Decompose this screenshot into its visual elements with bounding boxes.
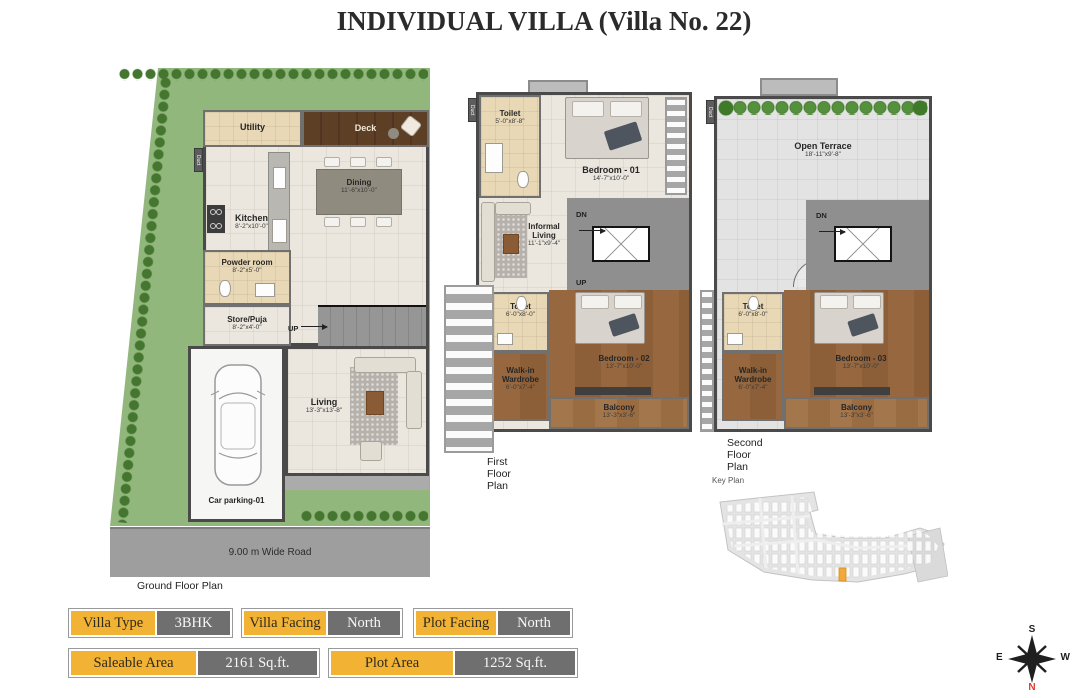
compass: S E W N: [1000, 624, 1064, 694]
key-plan-map: [708, 488, 948, 594]
ff-informal-dim: 11'-1"x9'-4": [521, 240, 567, 247]
sf-balcony: Balcony 13'-3"x3'-6": [784, 397, 929, 429]
dining-chair-icon: [376, 157, 392, 167]
ff-balcony-label: Balcony: [551, 403, 687, 412]
badge-value: 1252 Sq.ft.: [455, 651, 575, 675]
stairs-ground: [318, 305, 426, 346]
badge-villa-facing: Villa Facing North: [241, 608, 403, 638]
room-powder: Powder room 8'-2"x5'-0": [203, 250, 291, 305]
badge-label: Villa Type: [71, 611, 155, 635]
utility-label: Utility: [205, 122, 300, 132]
duct-tag: Duct: [706, 100, 715, 124]
ff-bedroom-01-dim: 14'-7"x10'-0": [551, 175, 671, 182]
tv-unit: [575, 387, 651, 395]
sink-icon: [255, 283, 275, 297]
sf-wardrobe-dim: 6'-0"x7'-4": [724, 384, 782, 391]
road: 9.00 m Wide Road: [110, 527, 430, 577]
ff-bedroom-02-dim: 13'-7"x10'-0": [569, 363, 679, 370]
compass-south: S: [1000, 624, 1064, 635]
compass-west: W: [1061, 652, 1070, 663]
dn-arrow-icon: [819, 231, 845, 232]
terrace-label: Open Terrace: [717, 141, 929, 151]
dining-chair-icon: [376, 217, 392, 227]
ff-informal-label: Informal Living: [521, 222, 567, 240]
dining-chair-icon: [324, 217, 340, 227]
car-parking-label: Car parking-01: [191, 496, 282, 505]
room-living: Living 13'-3"x13'-8": [285, 346, 429, 476]
powder-label: Powder room: [205, 258, 289, 267]
badge-value: 3BHK: [157, 611, 230, 635]
key-plan: Key Plan: [708, 476, 953, 598]
hedge-bottom-right: [300, 510, 428, 522]
ff-toilet-bottom-dim: 6'-0"x8'-0": [494, 311, 547, 318]
stove-icon: [207, 205, 225, 233]
badge-villa-type: Villa Type 3BHK: [68, 608, 233, 638]
sofa-icon: [495, 202, 531, 215]
toilet-icon: [517, 171, 529, 188]
roof-projection: [760, 78, 838, 96]
badge-value: 2161 Sq.ft.: [198, 651, 317, 675]
ff-bedroom-02: Bedroom - 02 13'-7"x10'-0": [549, 290, 689, 397]
sink-icon: [727, 333, 743, 345]
compass-east: E: [996, 652, 1003, 663]
badge-label: Saleable Area: [71, 651, 196, 675]
toilet-icon: [219, 280, 231, 297]
sf-toilet-dim: 6'-0"x8'-0": [724, 311, 782, 318]
duct-tag: Duct: [468, 98, 477, 122]
dn-arrow-icon: [579, 230, 605, 231]
dining-table-icon: Dining 11'-6"x10'-0": [316, 169, 402, 215]
bed-icon: [575, 292, 645, 344]
sf-bedroom-03-dim: 13'-7"x10'-0": [806, 363, 916, 370]
duct-tag: Duct: [194, 148, 203, 172]
ff-informal-living: Informal Living 11'-1"x9'-4": [479, 198, 567, 290]
badge-value: North: [328, 611, 400, 635]
kitchen-counter: [268, 152, 290, 252]
up-arrow-icon: [301, 326, 327, 327]
powder-dim: 8'-2"x5'-0": [205, 267, 289, 274]
key-plan-caption: Key Plan: [712, 476, 744, 485]
sf-dn-label: DN: [816, 205, 845, 241]
stairs-up-label: UP: [288, 318, 327, 336]
ff-toilet-top-label: Toilet: [481, 109, 539, 118]
ff-wardrobe-dim: 6'-0"x7'-4": [494, 384, 547, 391]
coffee-table-icon: [503, 234, 519, 254]
highlighted-plot: [839, 568, 846, 581]
sink-icon: [273, 167, 286, 189]
badge-value: North: [498, 611, 570, 635]
dining-chair-icon: [350, 217, 366, 227]
ff-balcony: Balcony 13'-3"x3'-6": [549, 397, 689, 429]
ground-floor-plan: Utility Deck Kitchen 8'-2"x10'-0": [0, 60, 440, 600]
sf-bedroom-03-label: Bedroom - 03: [806, 354, 916, 363]
pergola-louvers: [444, 285, 494, 453]
badge-plot-area: Plot Area 1252 Sq.ft.: [328, 648, 578, 678]
badge-label: Plot Facing: [416, 611, 496, 635]
terrace-dim: 18'-11"x9'-8": [717, 151, 929, 158]
ff-bedroom-01-label: Bedroom - 01: [551, 165, 671, 175]
badge-saleable-area: Saleable Area 2161 Sq.ft.: [68, 648, 320, 678]
villa-floorplan-sheet: INDIVIDUAL VILLA (Villa No. 22) Utility …: [0, 0, 1088, 698]
ff-balcony-dim: 13'-3"x3'-6": [551, 412, 687, 419]
sf-wardrobe: Walk-in Wardrobe 6'-0"x7'-4": [722, 352, 784, 421]
dining-label: Dining: [317, 178, 401, 187]
dining-chair-icon: [324, 157, 340, 167]
sf-balcony-label: Balcony: [786, 403, 927, 412]
ff-bedroom-02-label: Bedroom - 02: [569, 354, 679, 363]
sf-bedroom-03: Bedroom - 03 13'-7"x10'-0": [784, 290, 929, 397]
sf-balcony-dim: 13'-3"x3'-6": [786, 412, 927, 419]
coffee-table-icon: [366, 391, 384, 415]
ff-dn-label: DN: [576, 204, 605, 240]
sink-icon: [497, 333, 513, 345]
deck-table-icon: [388, 128, 399, 139]
ground-floor-caption: Ground Floor Plan: [137, 580, 223, 592]
sf-wardrobe-label: Walk-in Wardrobe: [724, 366, 782, 384]
page-title: INDIVIDUAL VILLA (Villa No. 22): [0, 6, 1088, 37]
room-deck: Deck: [302, 110, 429, 147]
living-label: Living: [294, 397, 354, 407]
store-dim: 8'-2"x4'-0": [205, 324, 289, 331]
room-store-puja: Store/Puja 8'-2"x4'-0": [203, 305, 291, 346]
bed-icon: [565, 97, 649, 159]
ff-wardrobe-label: Walk-in Wardrobe: [494, 366, 547, 384]
sf-toilet: Toilet 6'-0"x8'-0": [722, 292, 784, 352]
dining-dim: 11'-6"x10'-0": [317, 187, 401, 194]
sofa-icon: [481, 202, 495, 282]
fridge-icon: [272, 219, 287, 243]
second-floor-caption: Second Floor Plan: [727, 437, 763, 473]
store-label: Store/Puja: [205, 315, 289, 324]
compass-north: N: [1000, 682, 1064, 693]
road-label: 9.00 m Wide Road: [110, 547, 430, 559]
palm-icon: [911, 99, 929, 117]
badge-plot-facing: Plot Facing North: [413, 608, 573, 638]
tv-unit: [814, 387, 890, 395]
ff-toilet-top: Toilet 5'-0"x8'-8": [479, 95, 541, 198]
car-parking-area: Car parking-01: [188, 346, 285, 522]
ff-bedroom-01: Bedroom - 01 14'-7"x10'-0": [541, 95, 689, 198]
ff-toilet-top-dim: 5'-0"x8'-8": [481, 118, 539, 125]
entry-path: [285, 476, 429, 490]
ff-toilet-bottom: Toilet 6'-0"x8'-0": [492, 292, 549, 352]
toilet-icon: [516, 296, 527, 311]
deck-chair-icon: [400, 115, 422, 137]
terrace-hedge: [719, 101, 927, 115]
armchair-icon: [360, 441, 382, 461]
shower-icon: [485, 143, 503, 173]
first-floor-caption: First Floor Plan: [487, 456, 511, 492]
badge-label: Villa Facing: [244, 611, 326, 635]
sofa-icon: [406, 371, 422, 429]
toilet-icon: [748, 296, 759, 311]
room-utility: Utility: [203, 110, 302, 147]
car-icon: [209, 361, 267, 489]
palm-icon: [717, 99, 735, 117]
ff-wardrobe: Walk-in Wardrobe 6'-0"x7'-4": [492, 352, 549, 421]
badge-label: Plot Area: [331, 651, 453, 675]
pergola-louvers: [700, 290, 714, 432]
dining-chair-icon: [350, 157, 366, 167]
bed-icon: [814, 292, 884, 344]
living-dim: 13'-3"x13'-8": [294, 407, 354, 414]
